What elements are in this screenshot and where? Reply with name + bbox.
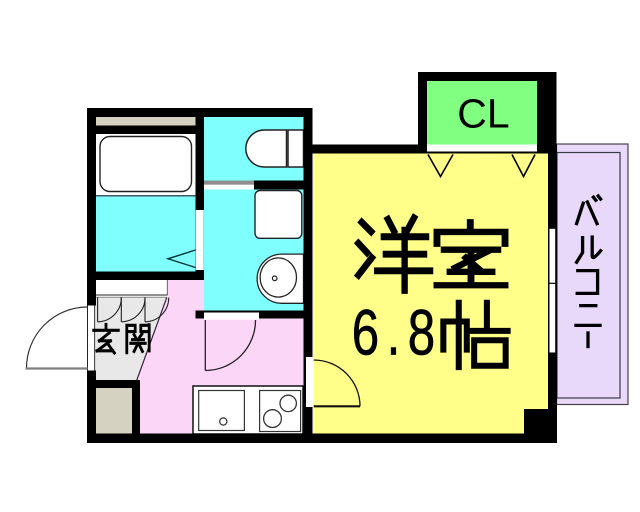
svg-text:8: 8	[408, 298, 435, 370]
svg-text:CL: CL	[457, 91, 509, 137]
svg-text:6: 6	[352, 298, 379, 370]
svg-text:.: .	[387, 298, 401, 370]
